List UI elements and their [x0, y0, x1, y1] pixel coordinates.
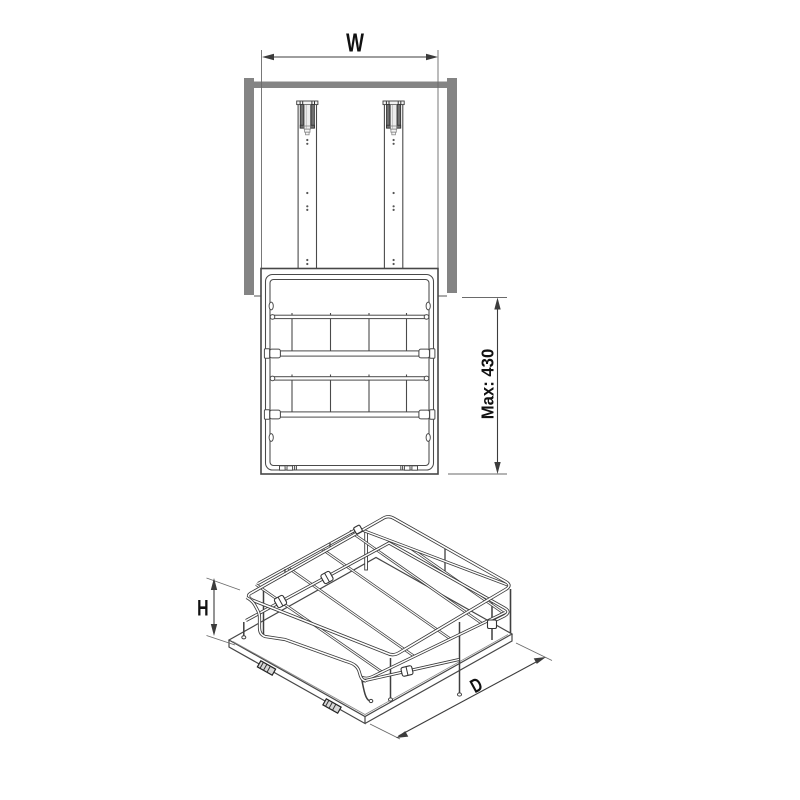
svg-text:D: D — [466, 673, 486, 698]
svg-text:H: H — [197, 597, 208, 621]
svg-text:Max: 430: Max: 430 — [478, 349, 497, 419]
svg-text:W: W — [346, 29, 365, 57]
